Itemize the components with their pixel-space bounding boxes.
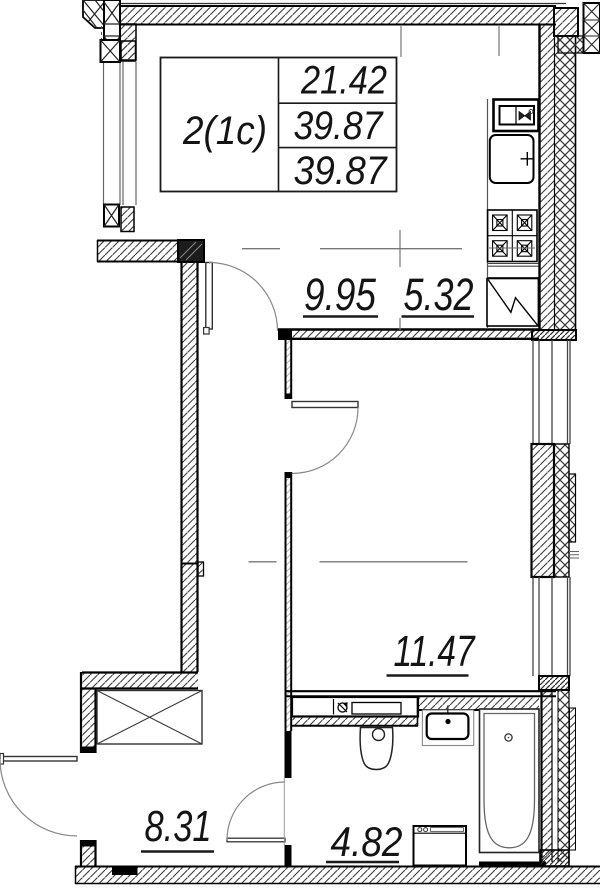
svg-text:39.87: 39.87 — [294, 104, 385, 148]
svg-text:21.42: 21.42 — [300, 59, 387, 103]
svg-text:39.87: 39.87 — [294, 149, 389, 193]
svg-text:9.95: 9.95 — [304, 269, 377, 320]
svg-text:5.32: 5.32 — [404, 269, 474, 320]
svg-text:8.31: 8.31 — [145, 802, 212, 851]
svg-text:2(1с): 2(1с) — [182, 109, 267, 153]
svg-text:11.47: 11.47 — [394, 627, 476, 676]
svg-text:4.82: 4.82 — [331, 818, 403, 865]
